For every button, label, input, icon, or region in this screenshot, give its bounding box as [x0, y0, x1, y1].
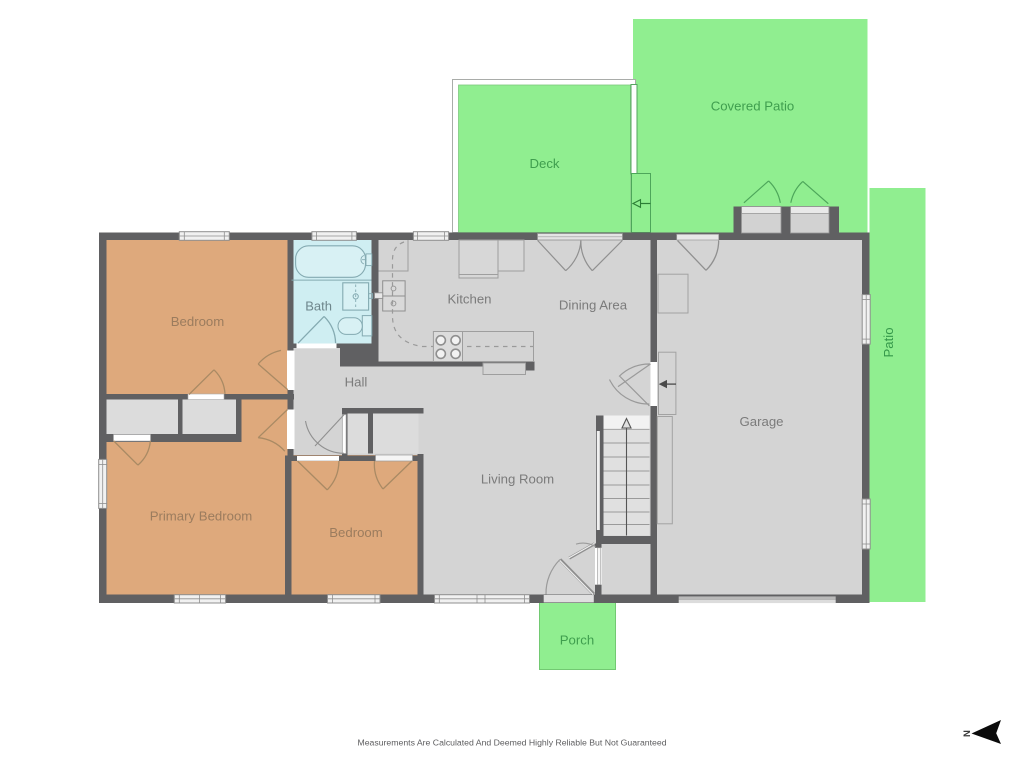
svg-text:Hall: Hall — [345, 375, 368, 390]
svg-text:Garage: Garage — [740, 414, 784, 429]
svg-text:Bath: Bath — [305, 299, 332, 314]
svg-text:Bedroom: Bedroom — [171, 314, 225, 329]
svg-text:Porch: Porch — [560, 633, 594, 648]
svg-text:Primary Bedroom: Primary Bedroom — [150, 509, 253, 524]
svg-text:Patio: Patio — [881, 327, 896, 357]
svg-text:Living Room: Living Room — [481, 472, 554, 487]
svg-text:Dining Area: Dining Area — [559, 298, 628, 313]
svg-text:Kitchen: Kitchen — [448, 292, 492, 307]
svg-text:Covered Patio: Covered Patio — [711, 99, 795, 114]
svg-text:Deck: Deck — [529, 156, 559, 171]
svg-text:Measurements Are Calculated An: Measurements Are Calculated And Deemed H… — [357, 738, 666, 748]
svg-text:N: N — [961, 730, 972, 737]
svg-text:Bedroom: Bedroom — [329, 525, 383, 540]
